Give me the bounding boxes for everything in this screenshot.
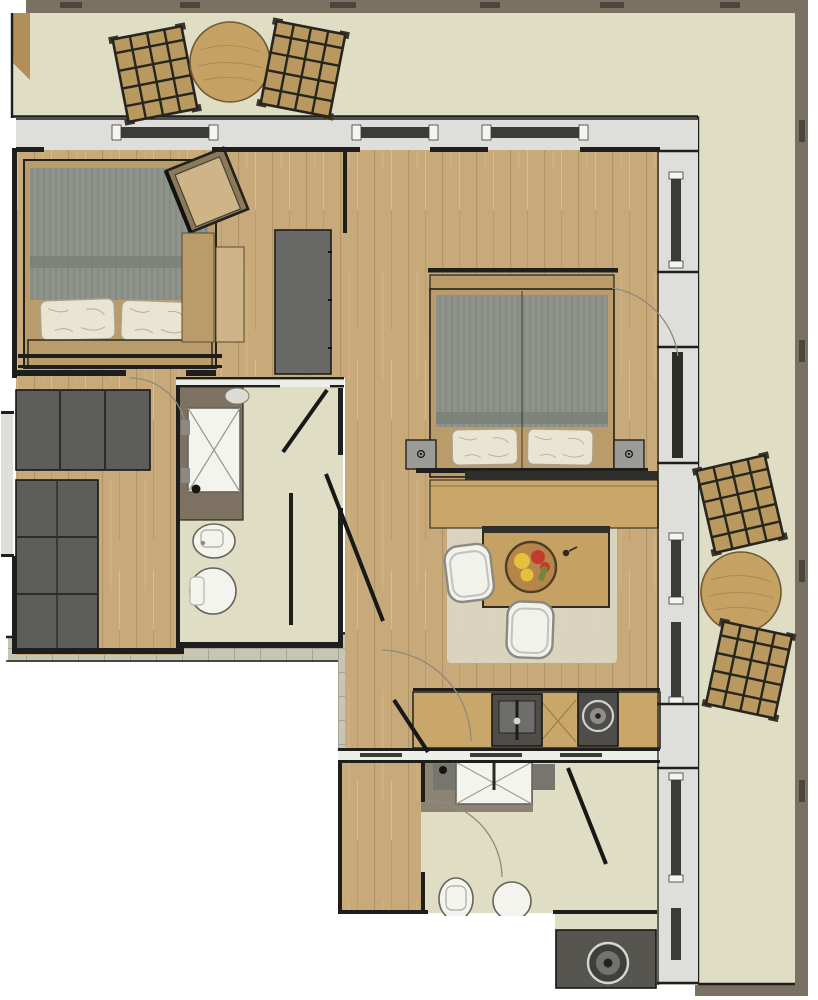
shower-handle	[181, 468, 190, 483]
bed-rail	[18, 365, 222, 368]
kitchen	[413, 692, 660, 748]
drain	[439, 766, 447, 774]
wardrobe-unit	[16, 390, 150, 470]
bed-rail	[18, 354, 222, 358]
vanity-side	[533, 764, 555, 790]
tall-cabinet	[275, 230, 331, 374]
table-item	[563, 550, 569, 556]
dresser	[216, 247, 244, 342]
outer-wall-top	[26, 0, 808, 13]
dresser	[182, 233, 214, 342]
duvet-fold	[30, 256, 208, 268]
utility	[556, 930, 656, 988]
basin	[225, 388, 249, 404]
floor-plan	[0, 0, 818, 1000]
bidet	[193, 524, 235, 558]
balcony-door-leaf	[672, 352, 683, 458]
low-sideboard	[465, 471, 658, 480]
fruit-tray	[506, 542, 556, 592]
outer-wall-right	[795, 8, 808, 988]
entrance-hall-floor	[338, 755, 425, 913]
side-window	[1, 414, 13, 556]
table-edge	[483, 527, 609, 533]
round-basin	[493, 882, 531, 920]
console-desk	[430, 480, 658, 528]
shower-drain	[192, 485, 201, 494]
toilet	[439, 878, 473, 920]
floor-plan-page	[0, 0, 818, 1000]
faucet	[514, 718, 521, 725]
bed-bench	[28, 340, 212, 366]
